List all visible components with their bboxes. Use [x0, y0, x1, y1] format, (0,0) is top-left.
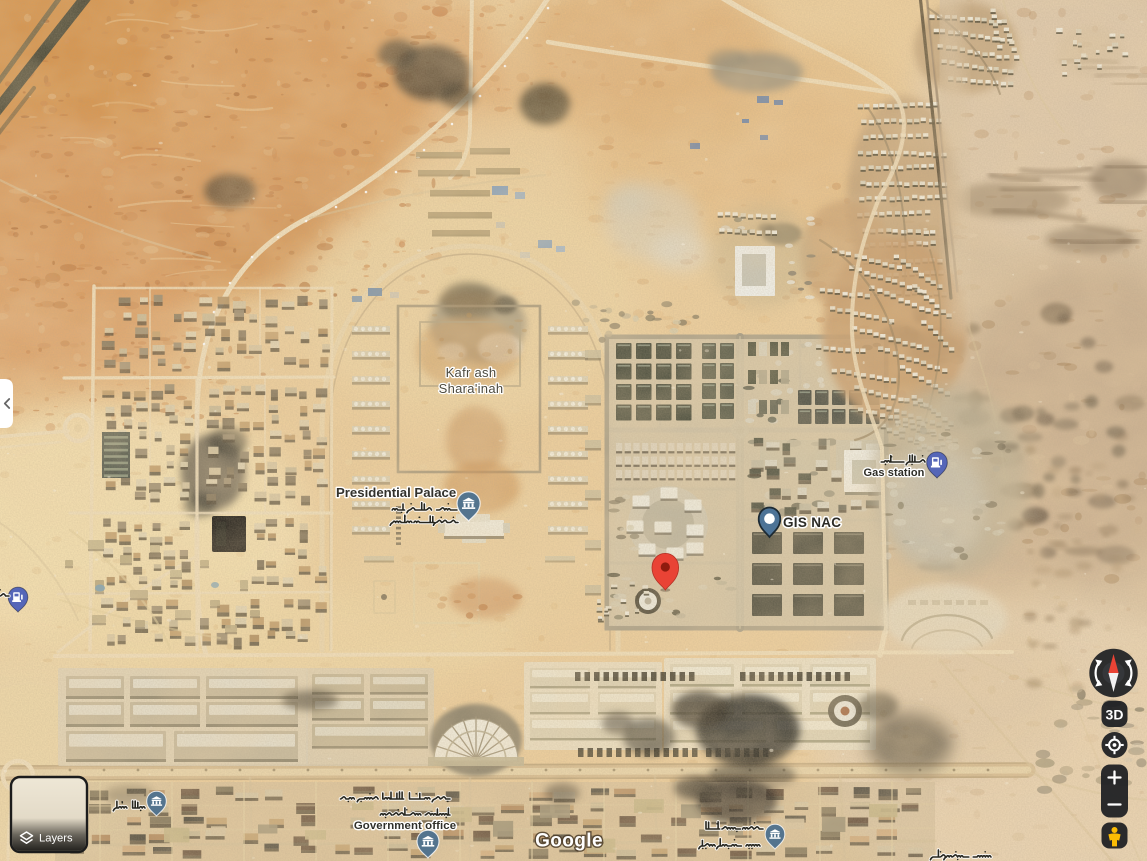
svg-text:Kafr ash: Kafr ash: [446, 365, 497, 380]
svg-text:Google: Google: [535, 831, 603, 852]
svg-text:Government office: Government office: [354, 820, 456, 832]
svg-text:GIS NAC: GIS NAC: [783, 515, 841, 530]
svg-text:3D: 3D: [1106, 707, 1124, 723]
svg-text:Gas station: Gas station: [863, 467, 924, 479]
svg-text:Shara'inah: Shara'inah: [439, 381, 504, 396]
svg-text:Layers: Layers: [39, 833, 73, 845]
svg-text:Presidential Palace: Presidential Palace: [336, 485, 456, 500]
